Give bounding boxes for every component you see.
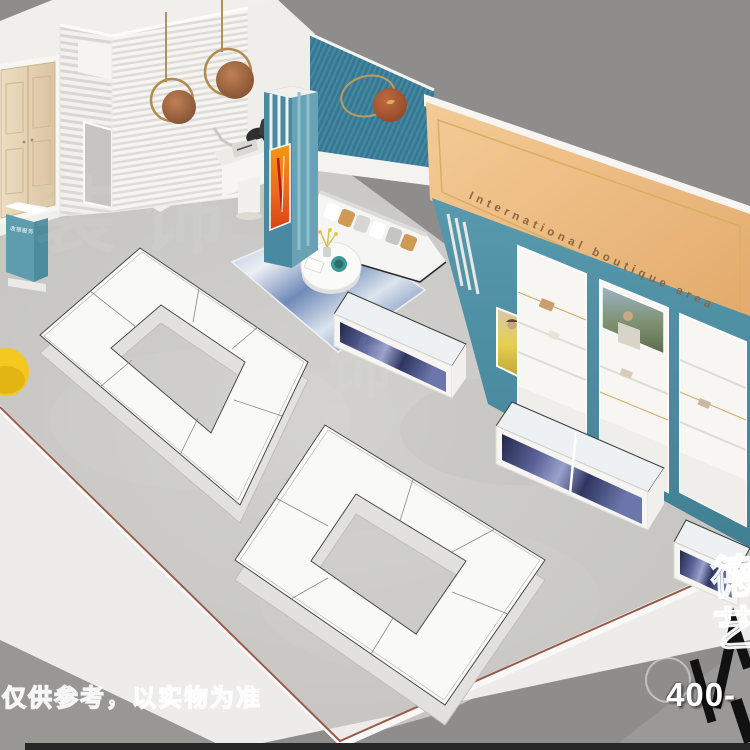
accent-wall <box>310 34 434 186</box>
store-3d-rendering: International boutique area 装饰 装饰 收银服务 仅… <box>0 0 750 750</box>
bronze-disc-mirror <box>162 90 196 124</box>
door-handle <box>31 139 34 142</box>
bronze-disc-mirror <box>216 61 254 99</box>
display-pillar <box>264 86 318 268</box>
vase <box>323 247 331 257</box>
entrance-door <box>0 55 59 224</box>
copper-disc-decor <box>373 88 407 122</box>
render-canvas <box>0 0 750 750</box>
door-handle <box>23 141 26 144</box>
watermark-ring <box>646 658 690 702</box>
bottom-edge-strip <box>25 743 750 750</box>
shelf-bay <box>680 314 746 526</box>
